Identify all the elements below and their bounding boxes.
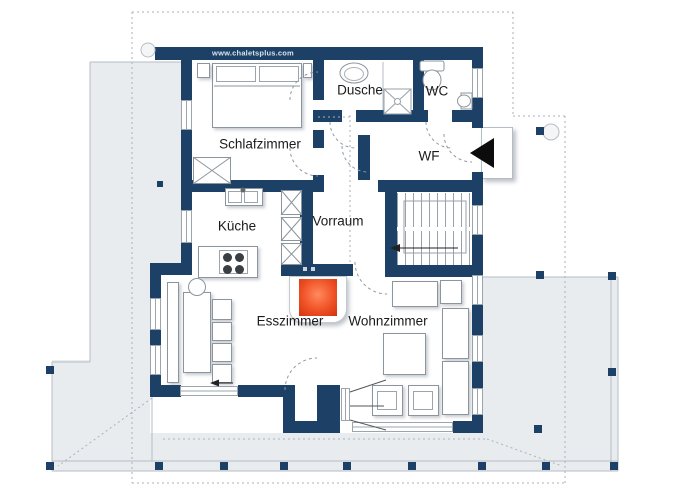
window (150, 298, 161, 330)
terrace-post (610, 462, 618, 470)
wall-segment (358, 135, 370, 180)
wall-segment (472, 362, 483, 388)
wall-segment (472, 415, 483, 422)
terrace-post (157, 181, 163, 187)
stove-corner-window (341, 388, 350, 421)
dining-chair (212, 343, 232, 362)
wall-segment (181, 243, 192, 265)
closet (281, 190, 302, 215)
dining-chair (212, 322, 232, 341)
terrace-post (46, 366, 54, 374)
corner-circle-icon (141, 43, 155, 57)
stair-flight-upper (397, 193, 470, 227)
floor-plan: www.chaletsplus.com Schlafzimmer Dusche … (0, 0, 700, 500)
window (180, 386, 238, 396)
closet (281, 243, 302, 265)
room-label-dusche: Dusche (337, 83, 383, 98)
terrace-post (220, 462, 228, 470)
terrace-post (280, 462, 288, 470)
pillow (216, 66, 256, 82)
wall-segment (472, 98, 483, 128)
wall-segment (283, 385, 295, 433)
burner-icon (235, 253, 244, 262)
burner-icon (223, 265, 232, 274)
wall-segment (378, 180, 483, 192)
wall-segment (385, 192, 397, 275)
wall-segment (150, 263, 192, 275)
sideboard (440, 280, 462, 304)
wall-segment (150, 275, 161, 298)
dining-chair (212, 364, 232, 383)
sofa (442, 308, 469, 359)
wall-segment (181, 60, 192, 100)
terrace-post (608, 272, 616, 280)
wall-segment (385, 265, 472, 277)
wall-segment (413, 60, 424, 110)
wall-segment (295, 421, 318, 433)
wall-segment (356, 110, 428, 122)
room-label-esszimmer: Esszimmer (257, 314, 324, 329)
room-label-kueche: Küche (218, 219, 256, 234)
sink-basin (228, 191, 242, 203)
entrance-porch (481, 127, 513, 179)
nightstand (303, 63, 312, 78)
terrace-post (46, 462, 54, 470)
terrace-post (542, 462, 550, 470)
window (472, 205, 483, 235)
armchair-cushion (377, 391, 397, 410)
flue-dot (303, 267, 307, 271)
window (181, 210, 192, 243)
wall-segment (313, 130, 324, 148)
entrance-post (536, 127, 544, 135)
entrance-circle-icon (543, 124, 559, 140)
room-label-vorraum: Vorraum (312, 214, 363, 229)
burner-icon (235, 265, 244, 274)
terrace-post (343, 462, 351, 470)
window (472, 275, 483, 305)
terrace-post (155, 462, 163, 470)
sideboard (392, 281, 438, 307)
window (181, 100, 192, 130)
wall-segment (313, 60, 324, 100)
wall-segment (155, 47, 483, 60)
terrace-post (408, 462, 416, 470)
wall-segment (181, 130, 192, 210)
room-label-wohnzimmer: Wohnzimmer (348, 314, 427, 329)
wall-segment (281, 264, 353, 276)
terrace-right (483, 277, 618, 471)
wall-segment (452, 110, 472, 122)
wardrobe (193, 157, 231, 184)
closet (281, 217, 302, 241)
wall-segment (313, 110, 342, 122)
site-watermark: www.chaletsplus.com (212, 49, 294, 58)
wall-segment (472, 235, 483, 275)
pillow (259, 66, 299, 82)
flue-dot (311, 267, 315, 271)
window (472, 335, 483, 362)
room-label-wc: WC (426, 84, 449, 99)
window (352, 422, 453, 432)
room-label-wf: WF (419, 149, 440, 164)
terrace-post (608, 368, 616, 376)
terrace-post (536, 271, 544, 279)
room-label-schlafzimmer: Schlafzimmer (219, 137, 301, 152)
sink-basin (244, 191, 258, 203)
wall-segment (317, 385, 340, 433)
window (472, 68, 483, 98)
terrace-post (534, 425, 542, 433)
armchair-cushion (413, 391, 433, 410)
fireplace-icon (299, 279, 337, 316)
nightstand (197, 63, 210, 78)
wall-segment (313, 175, 324, 192)
coffee-table (383, 333, 426, 375)
dining-chair (212, 299, 232, 320)
window (150, 345, 161, 375)
wall-segment (472, 60, 483, 68)
terrace-post (478, 462, 486, 470)
wall-segment (472, 305, 483, 335)
wall-segment (150, 330, 161, 345)
burner-icon (223, 253, 232, 262)
wall-segment (238, 385, 285, 397)
wall-segment (150, 385, 181, 397)
wall-segment (472, 192, 483, 205)
dining-table (183, 292, 211, 373)
wall-segment (453, 421, 483, 433)
dining-bench (167, 282, 179, 383)
sofa (442, 361, 469, 415)
stair-flight-lower (397, 231, 470, 265)
window (472, 388, 483, 415)
